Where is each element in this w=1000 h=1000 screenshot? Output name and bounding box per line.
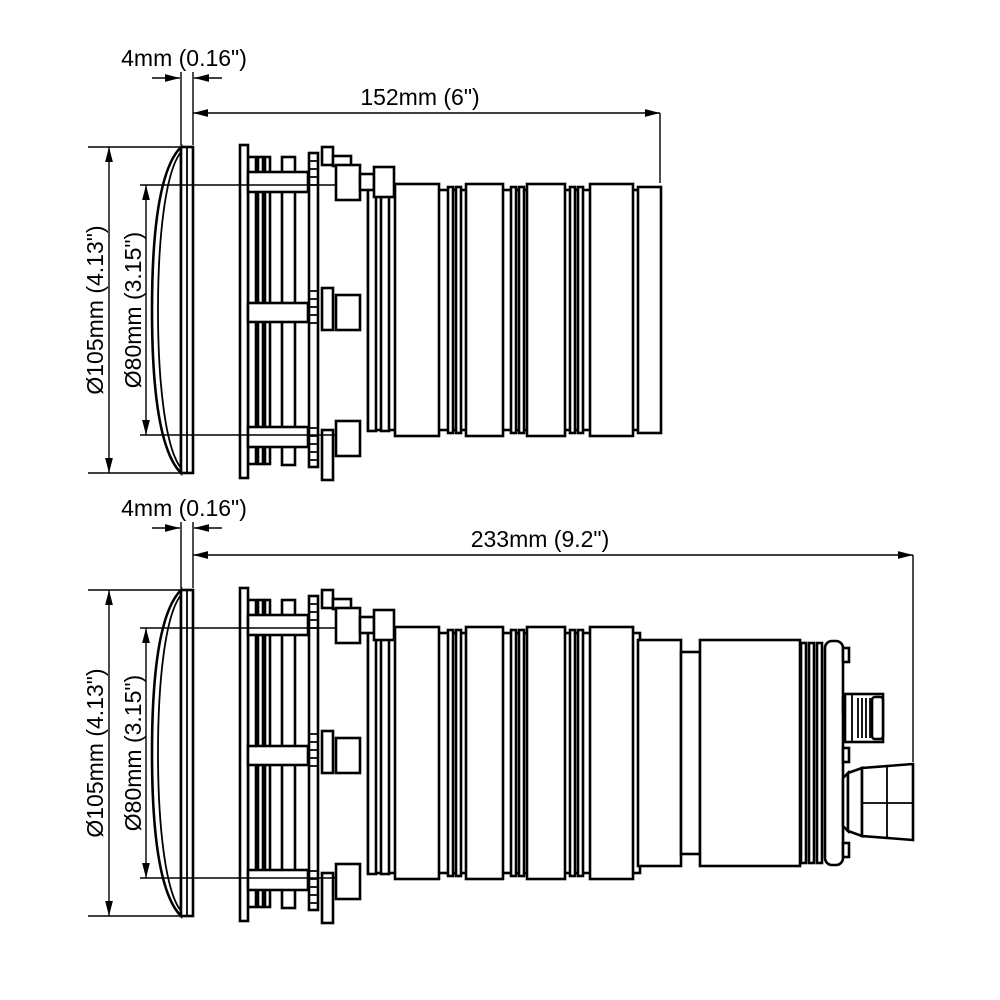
- rear-tab: [843, 843, 849, 857]
- dim-label-overall-length: 152mm (6"): [360, 84, 479, 110]
- dim-label-flange-thickness: 4mm (0.16"): [121, 45, 247, 71]
- rear-neck: [681, 652, 700, 854]
- rear-transition-cylinder: [638, 640, 681, 866]
- bottom-view-drawing: 4mm (0.16") 233mm (9.2") Ø105mm (4.13") …: [82, 495, 913, 923]
- dim-label-body-diameter: Ø80mm (3.15"): [120, 232, 146, 388]
- rear-connector-cap: [872, 697, 883, 739]
- technical-drawing-canvas: 4mm (0.16") 152mm (6") Ø105mm (4.13") Ø8…: [0, 0, 1000, 1000]
- top-view-drawing: 4mm (0.16") 152mm (6") Ø105mm (4.13") Ø8…: [82, 45, 661, 480]
- rear-tab: [843, 748, 849, 762]
- rear-end-cap: [825, 641, 843, 865]
- rear-rib: [817, 643, 822, 863]
- device-profile-short: [152, 145, 640, 480]
- dim-label-flange-diameter: Ø105mm (4.13"): [82, 668, 108, 837]
- cable-gland-funnel: [848, 768, 862, 836]
- dim-label-overall-length: 233mm (9.2"): [471, 526, 610, 552]
- dim-label-flange-thickness: 4mm (0.16"): [121, 495, 247, 521]
- device-profile-long: [152, 588, 640, 923]
- dim-label-flange-diameter: Ø105mm (4.13"): [82, 225, 108, 394]
- rear-rib: [809, 643, 814, 863]
- rear-rib: [801, 643, 806, 863]
- rear-tab: [843, 648, 849, 662]
- body-end-ring: [638, 187, 661, 433]
- dim-label-body-diameter: Ø80mm (3.15"): [120, 675, 146, 831]
- rear-housing-cylinder: [700, 640, 800, 866]
